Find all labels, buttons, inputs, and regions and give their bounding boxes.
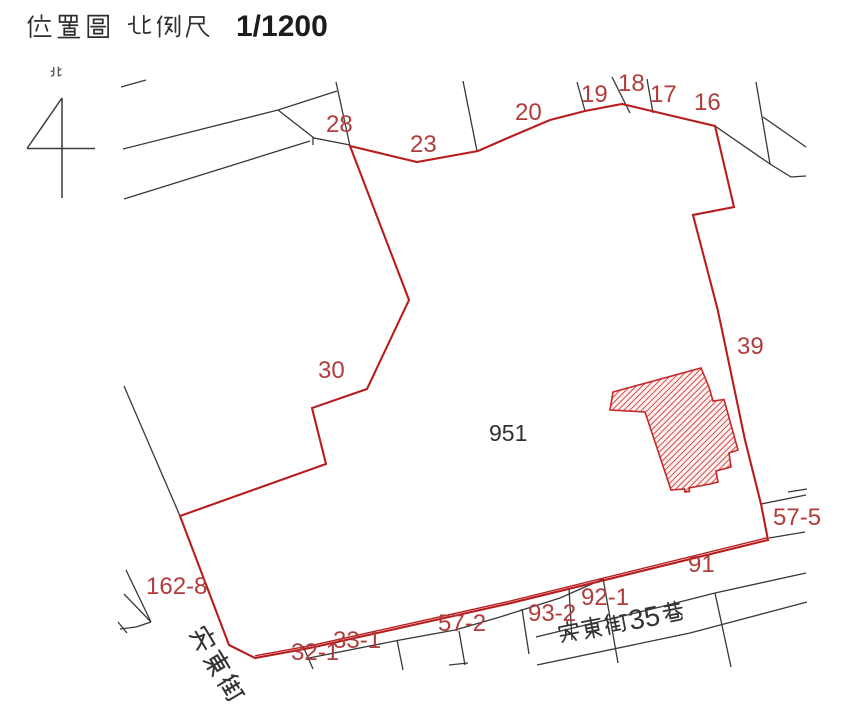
svg-text:33-1: 33-1 bbox=[333, 627, 381, 654]
svg-text:951: 951 bbox=[489, 420, 527, 446]
svg-text:39: 39 bbox=[737, 333, 764, 360]
svg-text:16: 16 bbox=[694, 89, 721, 116]
svg-text:28: 28 bbox=[326, 111, 353, 138]
svg-text:32-1: 32-1 bbox=[291, 639, 339, 666]
svg-text:162-8: 162-8 bbox=[146, 573, 207, 600]
svg-text:93-2: 93-2 bbox=[528, 600, 576, 627]
svg-text:57-5: 57-5 bbox=[773, 504, 821, 531]
svg-text:35: 35 bbox=[626, 600, 662, 636]
svg-text:19: 19 bbox=[581, 81, 608, 108]
svg-text:23: 23 bbox=[410, 131, 437, 158]
svg-text:17: 17 bbox=[650, 81, 677, 108]
svg-text:1/1200: 1/1200 bbox=[236, 10, 328, 43]
svg-text:18: 18 bbox=[618, 70, 645, 97]
svg-text:91: 91 bbox=[688, 551, 715, 578]
svg-text:57-2: 57-2 bbox=[438, 610, 486, 637]
svg-text:20: 20 bbox=[515, 99, 542, 126]
svg-text:92-1: 92-1 bbox=[581, 584, 629, 611]
svg-text:30: 30 bbox=[318, 357, 345, 384]
